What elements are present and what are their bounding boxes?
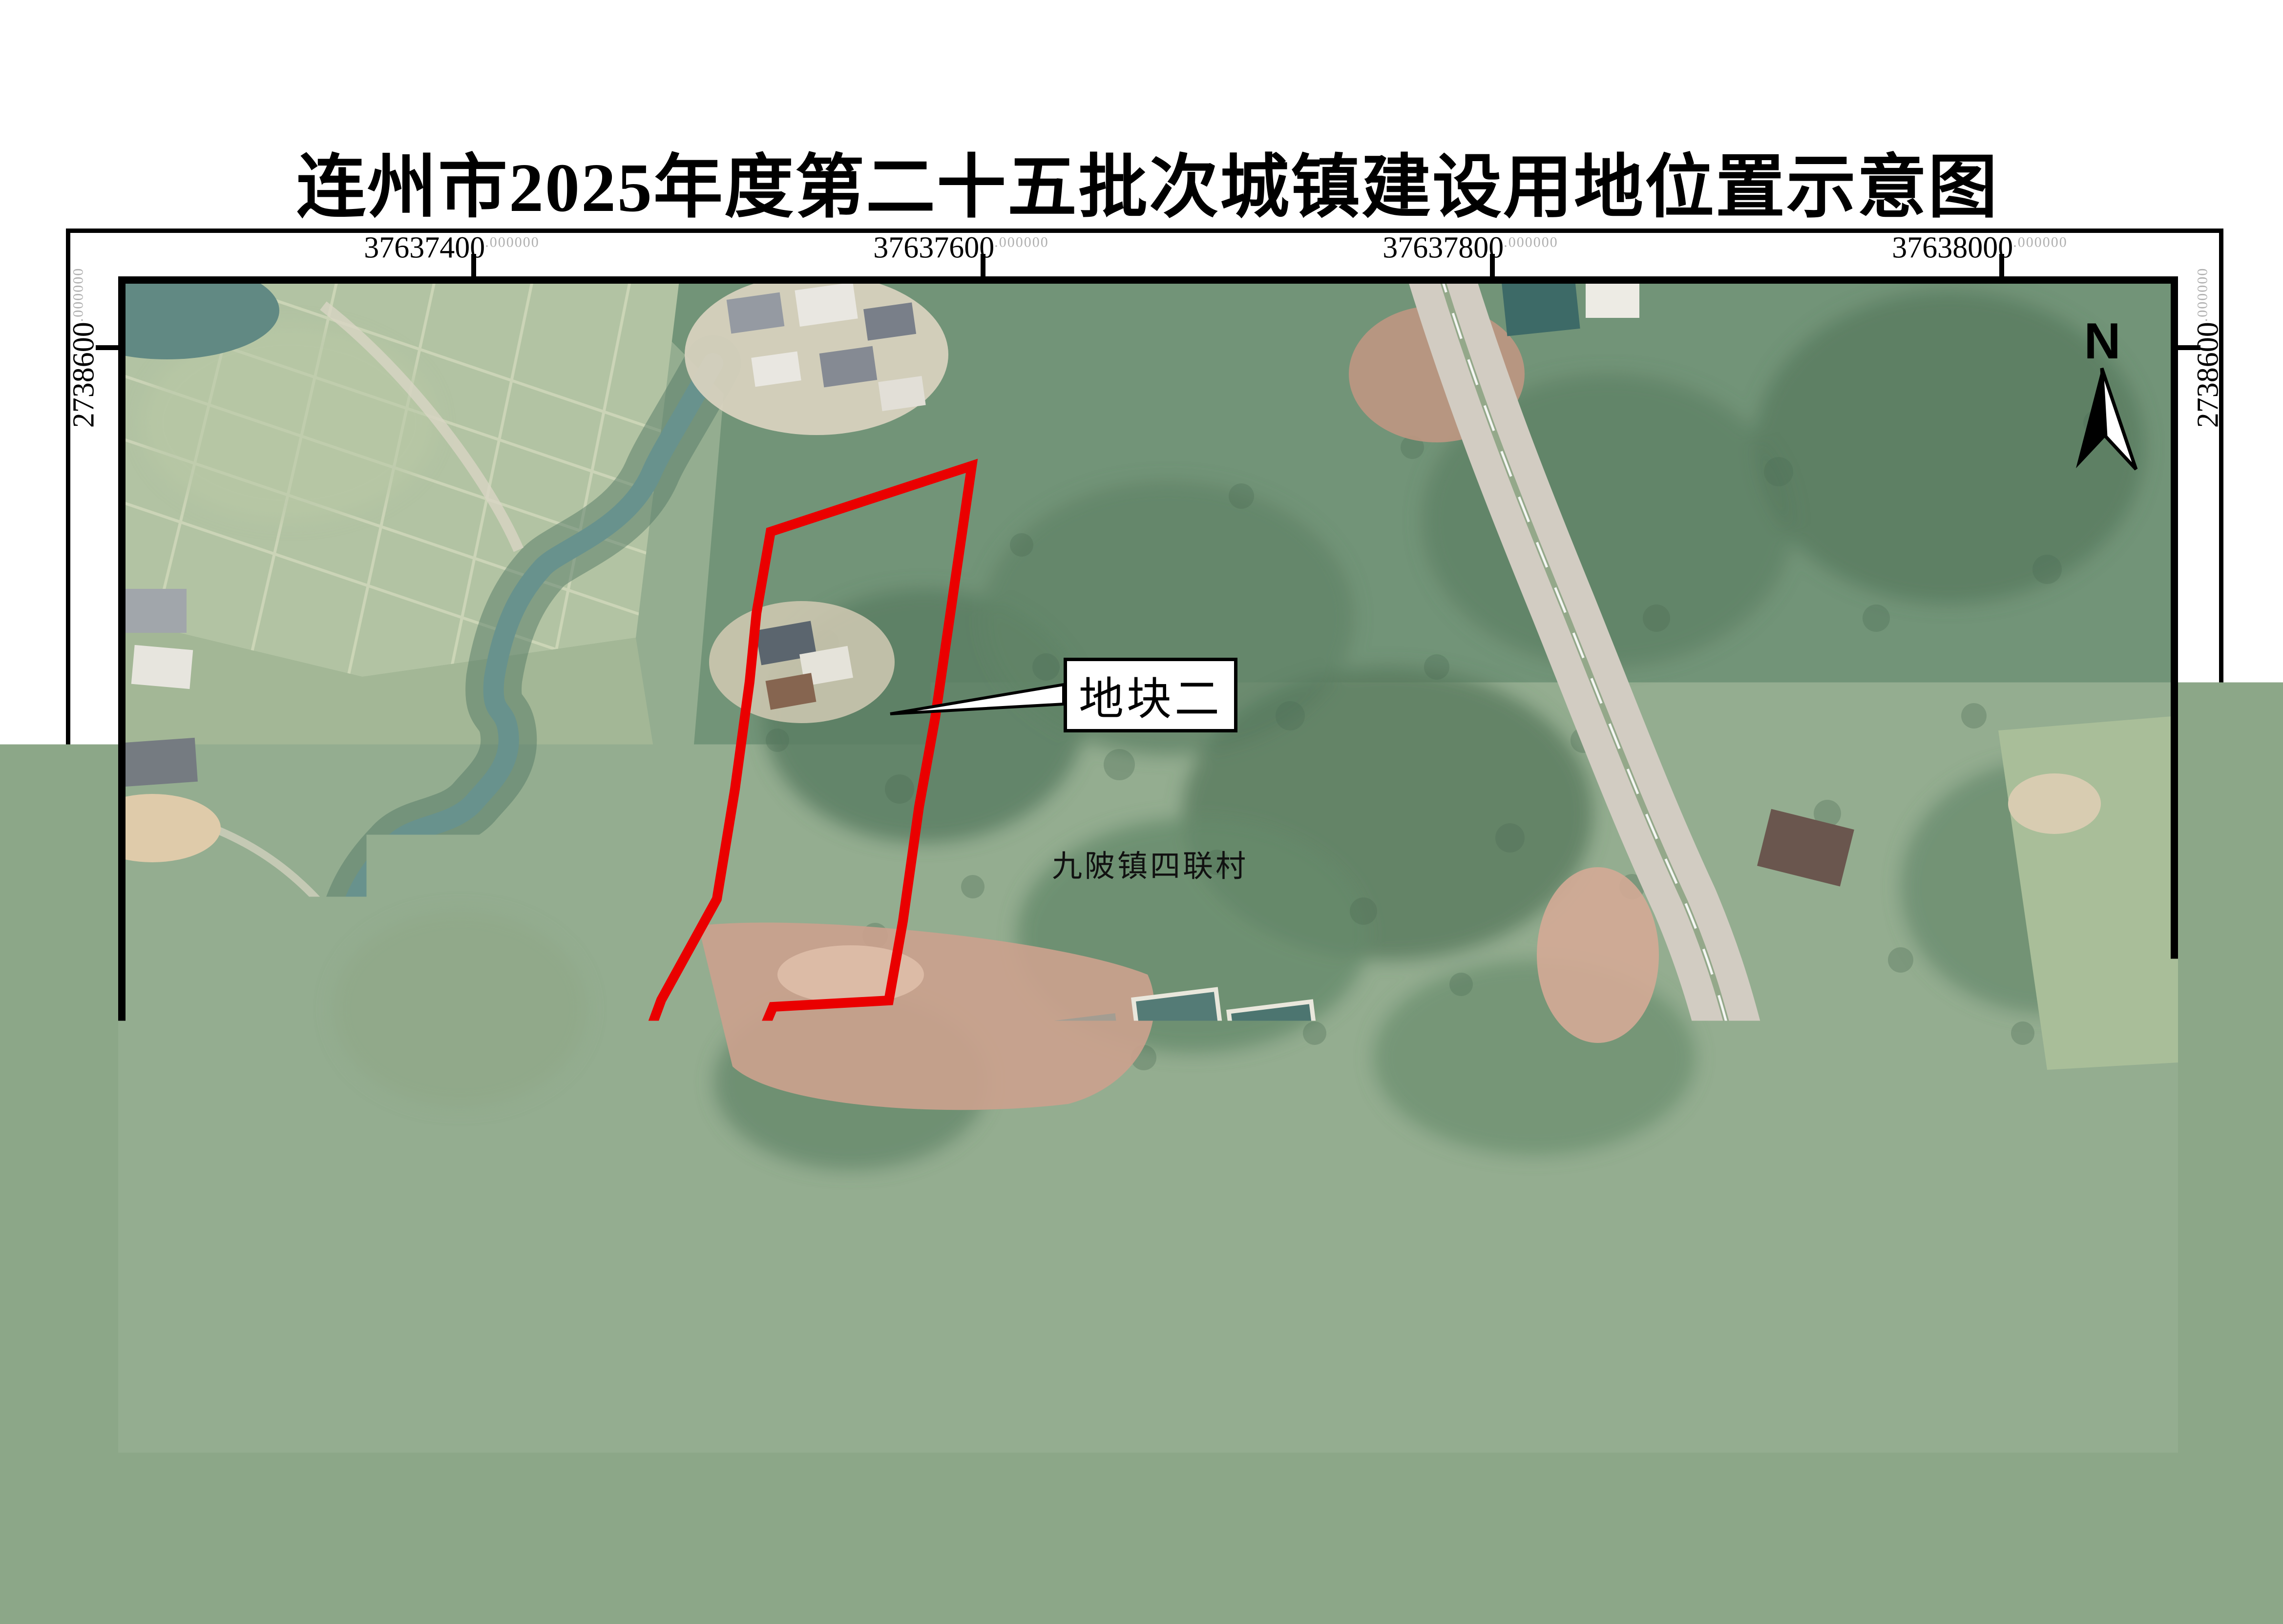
north-label: N — [2084, 313, 2120, 370]
xlabel-bottom-2: 37637600.000000 — [873, 1461, 1049, 1496]
xlabel-bottom-4: 37638000.000000 — [1892, 1461, 2068, 1496]
village-label: 九陂镇四联村 — [1052, 841, 1248, 885]
plot1-label: 地块一 — [837, 1334, 981, 1399]
page-title: 连州市2025年度第二十五批次城镇建设用地位置示意图 — [296, 130, 1999, 231]
datum-line-2: 1985国家高程基准 — [111, 1591, 395, 1624]
scale-text: 1:3,000 — [1944, 1356, 2119, 1414]
ylabel-left-2: 2738400.000000 — [67, 799, 102, 960]
callout-plot1: 地块一 — [821, 1326, 997, 1406]
plot2-label: 地块二 — [1079, 663, 1222, 728]
callout-plot2: 地块二 — [1064, 658, 1237, 732]
datum-line-1: 2000国家大地坐标系 — [111, 1558, 395, 1591]
xlabel-top-4: 37638000.000000 — [1892, 231, 2068, 266]
xlabel-top-2: 37637600.000000 — [873, 231, 1049, 266]
ylabel-left-1: 2738600.000000 — [67, 268, 102, 428]
ylabel-left-3: 2738200.000000 — [67, 1331, 102, 1492]
xlabel-top-3: 37637800.000000 — [1382, 231, 1558, 266]
north-arrow: N — [2064, 306, 2147, 477]
xlabel-top-1: 37637400.000000 — [364, 231, 540, 266]
ylabel-right-2: 2738400.000000 — [2191, 799, 2226, 960]
ylabel-right-3: 2738200.000000 — [2191, 1331, 2226, 1492]
datum-notes: 2000国家大地坐标系 1985国家高程基准 — [111, 1558, 395, 1624]
xlabel-bottom-3: 37637800.000000 — [1382, 1461, 1558, 1496]
map-frame: 地块二 地块一 九陂镇四联村 1:3,000 N — [118, 276, 2178, 1453]
north-arrow-right-half — [2102, 368, 2136, 469]
ylabel-right-1: 2738600.000000 — [2191, 268, 2226, 428]
xlabel-bottom-1: 37637400.000000 — [364, 1461, 540, 1496]
